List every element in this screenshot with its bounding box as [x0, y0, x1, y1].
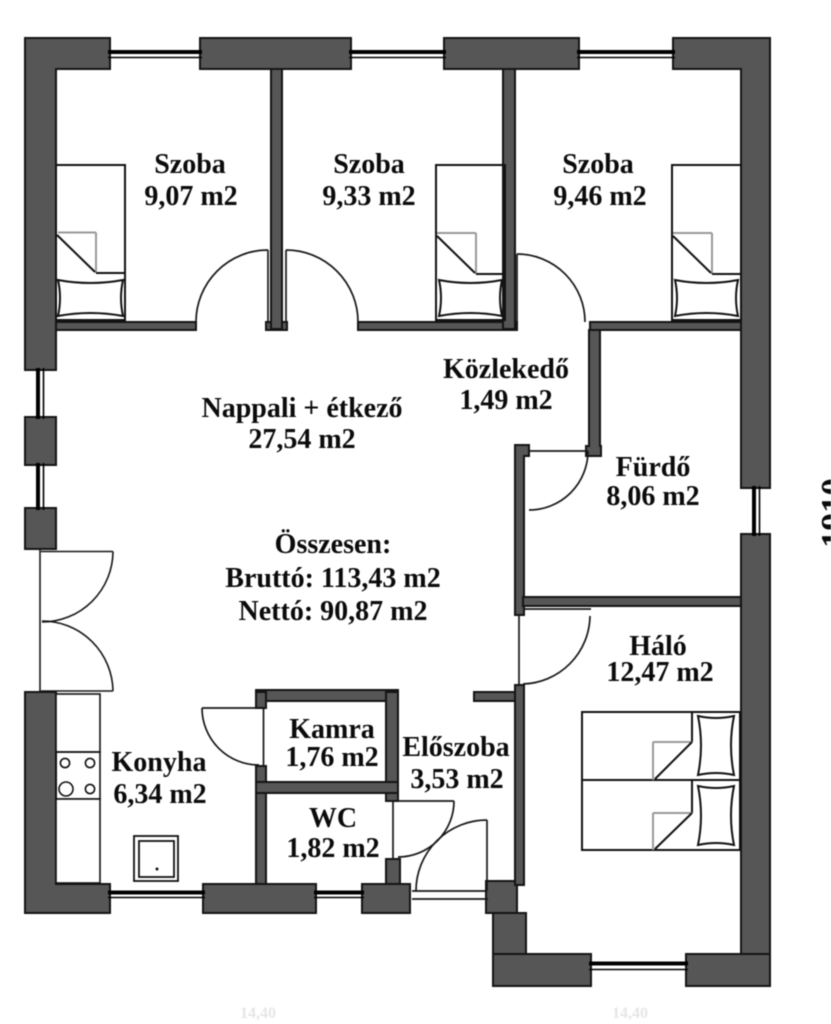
svg-text:Előszoba: Előszoba: [402, 732, 509, 763]
svg-text:14,40: 14,40: [612, 1005, 648, 1022]
svg-text:1,76 m2: 1,76 m2: [285, 742, 378, 773]
svg-text:9,07 m2: 9,07 m2: [144, 181, 237, 212]
svg-text:Fürdő: Fürdő: [616, 452, 691, 483]
svg-text:Bruttó: 113,43 m2: Bruttó: 113,43 m2: [225, 563, 440, 594]
svg-text:1,49 m2: 1,49 m2: [459, 385, 552, 416]
svg-text:Szoba: Szoba: [562, 149, 634, 180]
svg-text:Összesen:: Összesen:: [275, 529, 392, 560]
svg-text:3,53 m2: 3,53 m2: [410, 764, 503, 795]
svg-text:9,46 m2: 9,46 m2: [553, 181, 646, 212]
svg-text:WC: WC: [309, 803, 357, 834]
svg-text:1910: 1910: [814, 478, 831, 548]
svg-text:6,34 m2: 6,34 m2: [113, 779, 206, 810]
svg-text:Közlekedő: Közlekedő: [443, 354, 569, 385]
svg-text:8,06 m2: 8,06 m2: [606, 481, 699, 512]
svg-text:9,33 m2: 9,33 m2: [322, 181, 415, 212]
svg-text:1,82 m2: 1,82 m2: [286, 833, 379, 864]
svg-text:Szoba: Szoba: [333, 149, 405, 180]
svg-text:Nappali + étkező: Nappali + étkező: [201, 393, 402, 424]
svg-text:Konyha: Konyha: [112, 747, 207, 778]
svg-text:12,47 m2: 12,47 m2: [606, 657, 713, 688]
svg-text:14,40: 14,40: [240, 1005, 276, 1022]
svg-text:Kamra: Kamra: [289, 714, 375, 745]
svg-text:Nettó: 90,87 m2: Nettó: 90,87 m2: [239, 596, 428, 627]
svg-text:Szoba: Szoba: [154, 149, 226, 180]
svg-text:27,54 m2: 27,54 m2: [248, 424, 355, 455]
